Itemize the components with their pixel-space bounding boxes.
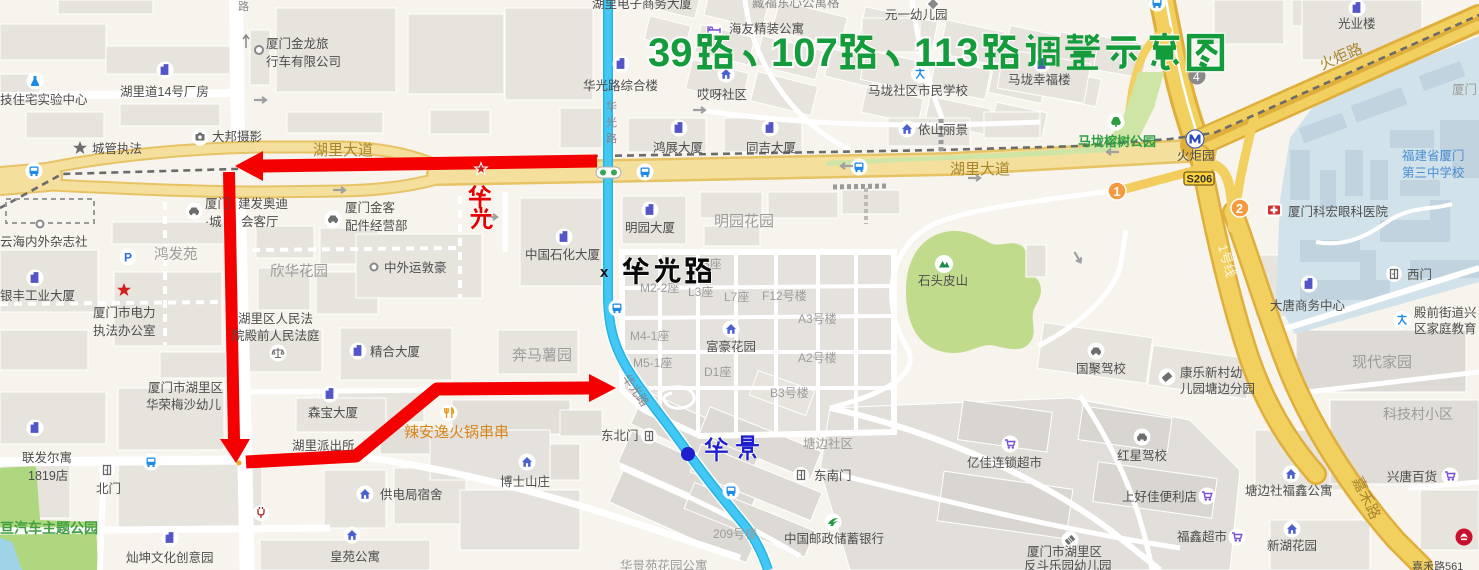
svg-text:D1座: D1座 <box>704 364 731 379</box>
svg-text:配件经营部: 配件经营部 <box>345 218 408 233</box>
svg-text:马垅社区市民学校: 马垅社区市民学校 <box>868 83 969 98</box>
svg-text:执法办公室: 执法办公室 <box>93 323 156 338</box>
svg-text:火炬园: 火炬园 <box>1177 149 1215 163</box>
svg-text:厦门: 厦门 <box>1452 82 1477 97</box>
svg-text:元一幼儿园: 元一幼儿园 <box>885 8 948 22</box>
svg-text:厦门金龙旅: 厦门金龙旅 <box>266 36 329 51</box>
svg-text:华景苑花园公寓: 华景苑花园公寓 <box>620 558 708 570</box>
svg-text:技住宅实验中心: 技住宅实验中心 <box>0 92 88 107</box>
svg-text:湖里区人民法: 湖里区人民法 <box>238 311 313 326</box>
svg-text:科技村小区: 科技村小区 <box>1383 406 1453 422</box>
svg-text:113: 113 <box>914 31 979 75</box>
svg-text:藏福东心公寓格: 藏福东心公寓格 <box>752 0 840 10</box>
svg-text:1: 1 <box>1114 185 1121 199</box>
svg-text:银丰工业大厦: 银丰工业大厦 <box>0 289 75 303</box>
svg-text:东南门: 东南门 <box>814 468 852 483</box>
svg-text:殿前街道兴: 殿前街道兴 <box>1414 305 1477 320</box>
svg-text:联发尔寓: 联发尔寓 <box>22 450 72 465</box>
svg-text:儿园塘边分园: 儿园塘边分园 <box>1180 381 1255 396</box>
svg-text:·城: ·城 <box>205 215 222 229</box>
svg-text:厦门市湖里区: 厦门市湖里区 <box>1027 544 1102 559</box>
svg-text:209号楼: 209号楼 <box>713 526 757 541</box>
svg-text:厦门科宏眼科医院: 厦门科宏眼科医院 <box>1288 204 1389 219</box>
svg-text:中外运敦豪: 中外运敦豪 <box>384 260 447 275</box>
svg-text:厦门市电力: 厦门市电力 <box>93 305 156 320</box>
svg-text:F12号楼: F12号楼 <box>762 288 807 303</box>
svg-text:光: 光 <box>606 115 617 129</box>
svg-text:富豪花园: 富豪花园 <box>706 339 756 354</box>
svg-text:新湖花园: 新湖花园 <box>1267 538 1317 553</box>
svg-text:路: 路 <box>606 132 617 145</box>
svg-text:A2号楼: A2号楼 <box>798 350 837 365</box>
svg-text:x: x <box>600 264 609 281</box>
svg-text:L3座: L3座 <box>688 284 713 299</box>
svg-text:鸿展大厦: 鸿展大厦 <box>653 140 703 155</box>
svg-text:第三中学校: 第三中学校 <box>1402 165 1465 180</box>
svg-text:反斗乐园幼儿园: 反斗乐园幼儿园 <box>1024 559 1112 570</box>
svg-text:精合大厦: 精合大厦 <box>370 344 420 359</box>
svg-text:1819店: 1819店 <box>28 469 68 483</box>
svg-text:马垅榕树公园: 马垅榕树公园 <box>1078 134 1156 149</box>
svg-text:厦门: 厦门 <box>205 196 230 211</box>
svg-text:S206: S206 <box>1187 174 1213 186</box>
svg-text:华光路综合楼: 华光路综合楼 <box>583 78 658 93</box>
svg-text:M4-1座: M4-1座 <box>630 328 669 343</box>
svg-text:厦门金客: 厦门金客 <box>345 200 396 215</box>
svg-text:灿坤文化创意园: 灿坤文化创意园 <box>126 550 214 565</box>
svg-text:北门: 北门 <box>96 481 121 496</box>
svg-text:华荣梅沙幼儿: 华荣梅沙幼儿 <box>146 397 222 412</box>
svg-text:博士山庄: 博士山庄 <box>500 474 550 489</box>
svg-text:奔马薯园: 奔马薯园 <box>512 347 572 364</box>
svg-text:明园花园: 明园花园 <box>714 213 774 230</box>
svg-text:亿佳连锁超市: 亿佳连锁超市 <box>967 455 1042 470</box>
svg-text:城管执法: 城管执法 <box>92 141 142 156</box>
svg-text:石头皮山: 石头皮山 <box>918 274 968 288</box>
svg-text:哎呀社区: 哎呀社区 <box>697 87 747 102</box>
svg-text:会客厅: 会客厅 <box>241 214 279 229</box>
svg-text:2: 2 <box>1236 202 1243 216</box>
svg-text:鸿发苑: 鸿发苑 <box>154 246 198 263</box>
svg-text:L7座: L7座 <box>724 289 749 304</box>
svg-text:明园大厦: 明园大厦 <box>625 221 675 235</box>
svg-text:湖里大道: 湖里大道 <box>950 161 1010 178</box>
svg-text:依山丽景: 依山丽景 <box>918 122 968 137</box>
svg-text:东北门: 东北门 <box>601 428 639 443</box>
svg-text:区家庭教育: 区家庭教育 <box>1414 321 1477 336</box>
svg-text:M5-1座: M5-1座 <box>633 355 672 370</box>
svg-text:西门: 西门 <box>1407 267 1432 282</box>
svg-text:亘汽车主题公园: 亘汽车主题公园 <box>0 520 98 536</box>
svg-text:森宝大厦: 森宝大厦 <box>308 405 358 420</box>
svg-text:湖里派出所: 湖里派出所 <box>292 438 355 453</box>
svg-text:马垅幸福楼: 马垅幸福楼 <box>1008 72 1071 87</box>
svg-text:康乐新村幼: 康乐新村幼 <box>1180 365 1243 380</box>
svg-text:国聚驾校: 国聚驾校 <box>1076 361 1127 376</box>
svg-text:湖里大道: 湖里大道 <box>313 142 373 159</box>
svg-text:路: 路 <box>238 0 249 13</box>
svg-text:红星驾校: 红星驾校 <box>1117 448 1168 463</box>
svg-text:云海内外杂志社: 云海内外杂志社 <box>0 234 88 249</box>
svg-text:建发奥迪: 建发奥迪 <box>238 196 288 211</box>
svg-text:现代家园: 现代家园 <box>1352 354 1412 371</box>
svg-text:大唐商务中心: 大唐商务中心 <box>1270 298 1346 313</box>
svg-text:塘边社福鑫公寓: 塘边社福鑫公寓 <box>1245 483 1333 498</box>
svg-text:嘉禾路561: 嘉禾路561 <box>1412 559 1463 570</box>
svg-text:湖里道14号厂房: 湖里道14号厂房 <box>120 84 209 99</box>
svg-text:皇苑公寓: 皇苑公寓 <box>330 549 380 564</box>
svg-text:欣华花园: 欣华花园 <box>270 263 328 280</box>
svg-text:福鑫超市: 福鑫超市 <box>1177 529 1227 544</box>
svg-text:供电局宿舍: 供电局宿舍 <box>380 487 443 502</box>
svg-text:中国石化大厦: 中国石化大厦 <box>525 247 600 262</box>
svg-text:同吉大厦: 同吉大厦 <box>746 141 796 155</box>
svg-text:院殿前人民法庭: 院殿前人民法庭 <box>232 328 320 343</box>
svg-text:大邦摄影: 大邦摄影 <box>212 129 263 144</box>
svg-text:华: 华 <box>606 99 617 113</box>
svg-text:A3号楼: A3号楼 <box>798 311 837 326</box>
svg-text:上好佳便利店: 上好佳便利店 <box>1122 490 1197 504</box>
svg-text:107: 107 <box>771 31 838 75</box>
svg-text:福建省厦门: 福建省厦门 <box>1402 148 1465 163</box>
svg-text:行车有限公司: 行车有限公司 <box>266 54 341 69</box>
svg-text:中国邮政储蓄银行: 中国邮政储蓄银行 <box>784 531 884 546</box>
svg-text:辣安逸火锅串串: 辣安逸火锅串串 <box>404 424 509 441</box>
svg-text:塘边社区: 塘边社区 <box>803 436 853 451</box>
svg-text:兴唐百货: 兴唐百货 <box>1387 469 1437 484</box>
svg-text:光业楼: 光业楼 <box>1338 16 1376 31</box>
svg-text:厦门市湖里区: 厦门市湖里区 <box>148 380 223 395</box>
svg-text:B3号楼: B3号楼 <box>770 385 809 400</box>
svg-text:39: 39 <box>648 31 693 75</box>
svg-text:湖里电子商务大厦: 湖里电子商务大厦 <box>592 0 692 11</box>
